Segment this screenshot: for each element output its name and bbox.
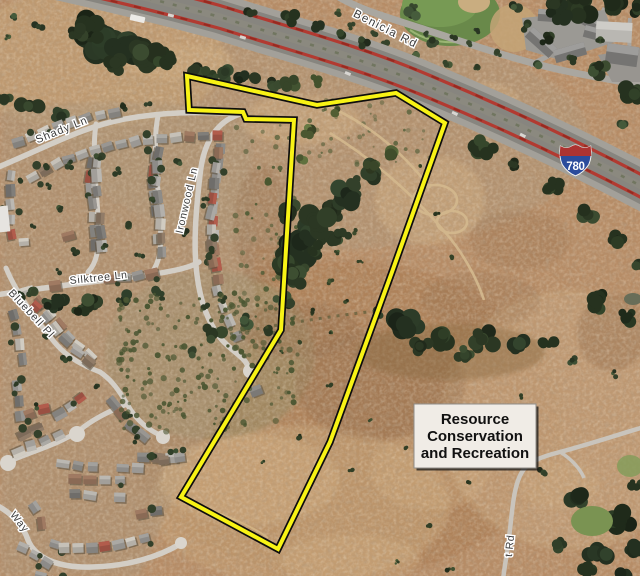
svg-text:Conservation: Conservation <box>427 428 523 445</box>
svg-text:and Recreation: and Recreation <box>421 445 529 462</box>
svg-text:Resource: Resource <box>441 411 509 428</box>
svg-text:t Rd: t Rd <box>503 534 517 558</box>
svg-text:780: 780 <box>566 161 584 173</box>
